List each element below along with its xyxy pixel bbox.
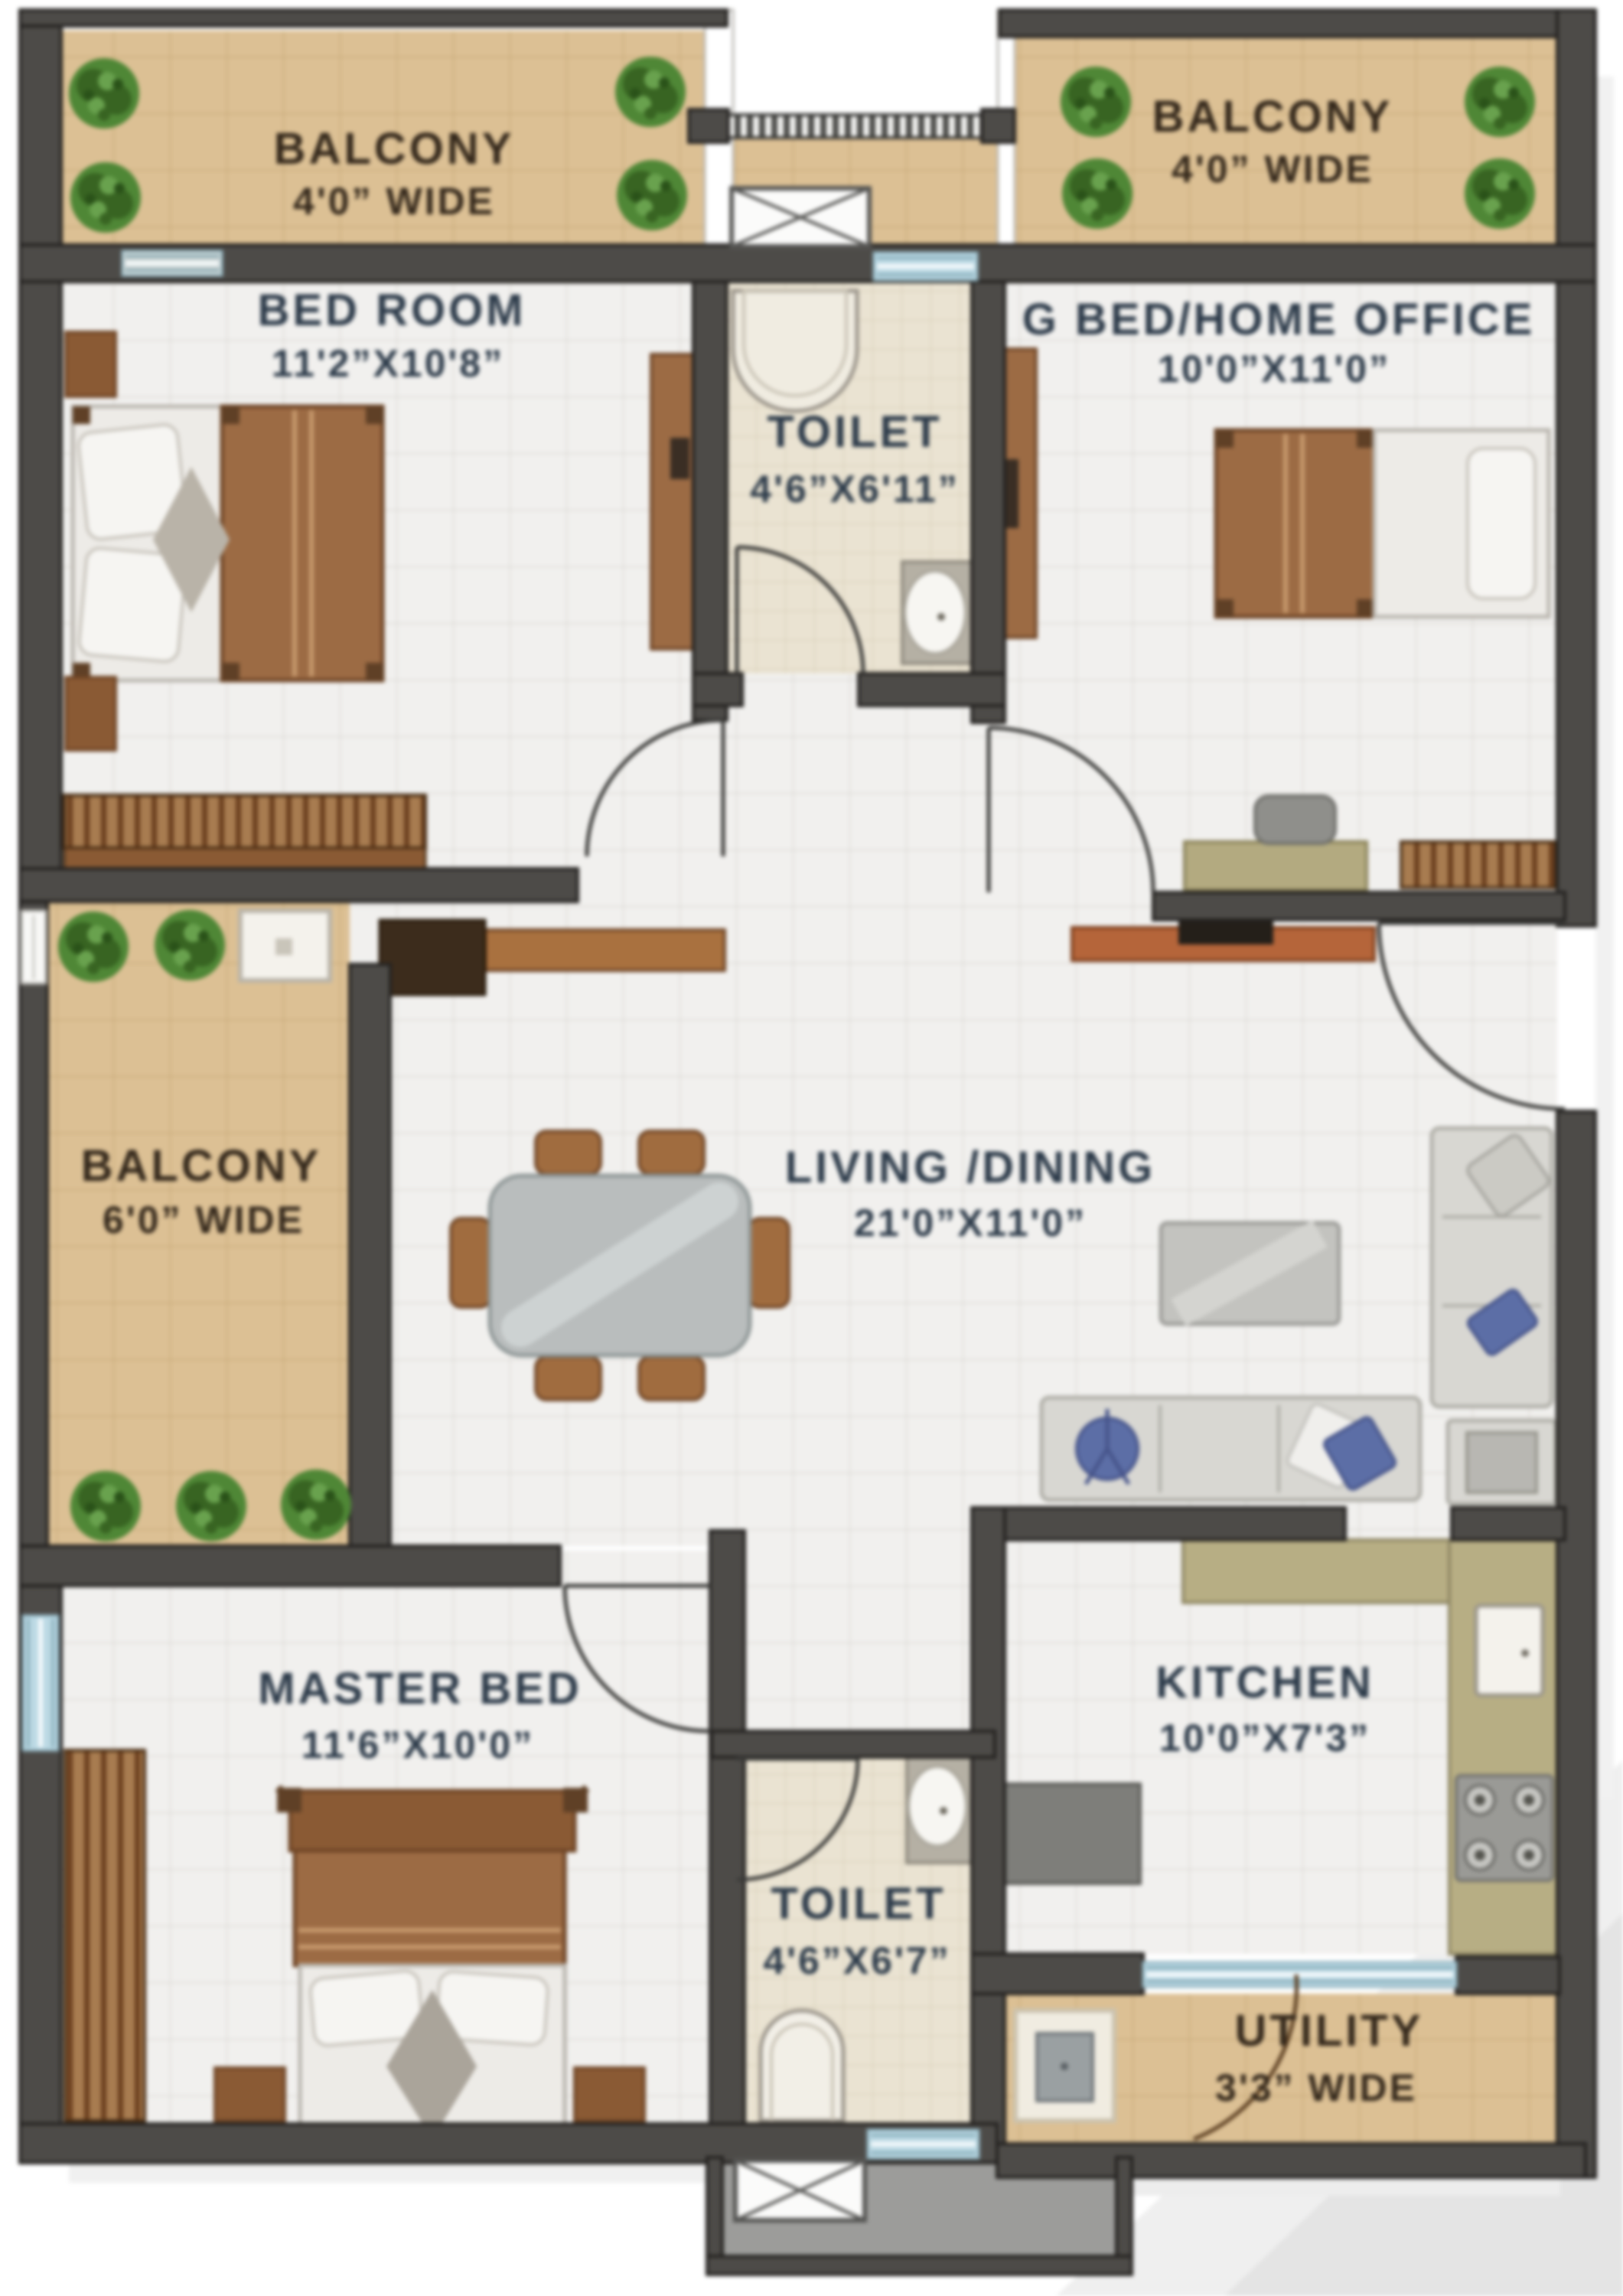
svg-text:11'6”X10'0”: 11'6”X10'0” bbox=[301, 1724, 534, 1766]
svg-text:UTILITY: UTILITY bbox=[1234, 2006, 1423, 2056]
svg-text:TOILET: TOILET bbox=[771, 1879, 946, 1929]
svg-text:KITCHEN: KITCHEN bbox=[1155, 1658, 1374, 1707]
svg-text:BED ROOM: BED ROOM bbox=[258, 285, 526, 335]
svg-text:10'0”X7'3”: 10'0”X7'3” bbox=[1159, 1717, 1370, 1760]
svg-text:G BED/HOME OFFICE: G BED/HOME OFFICE bbox=[1022, 295, 1536, 344]
svg-text:TOILET: TOILET bbox=[767, 407, 942, 457]
svg-text:10'0”X11'0”: 10'0”X11'0” bbox=[1158, 347, 1390, 390]
svg-text:4'0” WIDE: 4'0” WIDE bbox=[1172, 148, 1374, 191]
svg-text:4'6”X6'11”: 4'6”X6'11” bbox=[750, 468, 959, 510]
svg-text:4'6”X6'7”: 4'6”X6'7” bbox=[763, 1939, 950, 1982]
svg-text:LIVING /DINING: LIVING /DINING bbox=[785, 1143, 1156, 1192]
svg-text:4'0” WIDE: 4'0” WIDE bbox=[293, 180, 495, 223]
svg-text:3'3” WIDE: 3'3” WIDE bbox=[1215, 2066, 1417, 2109]
svg-text:BALCONY: BALCONY bbox=[1152, 92, 1393, 142]
svg-text:BALCONY: BALCONY bbox=[81, 1141, 322, 1191]
svg-text:MASTER BED: MASTER BED bbox=[258, 1664, 582, 1714]
svg-text:21'0”X11'0”: 21'0”X11'0” bbox=[854, 1202, 1087, 1244]
svg-text:BALCONY: BALCONY bbox=[274, 124, 515, 174]
svg-text:11'2”X10'8”: 11'2”X10'8” bbox=[272, 342, 504, 385]
svg-text:6'0” WIDE: 6'0” WIDE bbox=[103, 1199, 305, 1241]
